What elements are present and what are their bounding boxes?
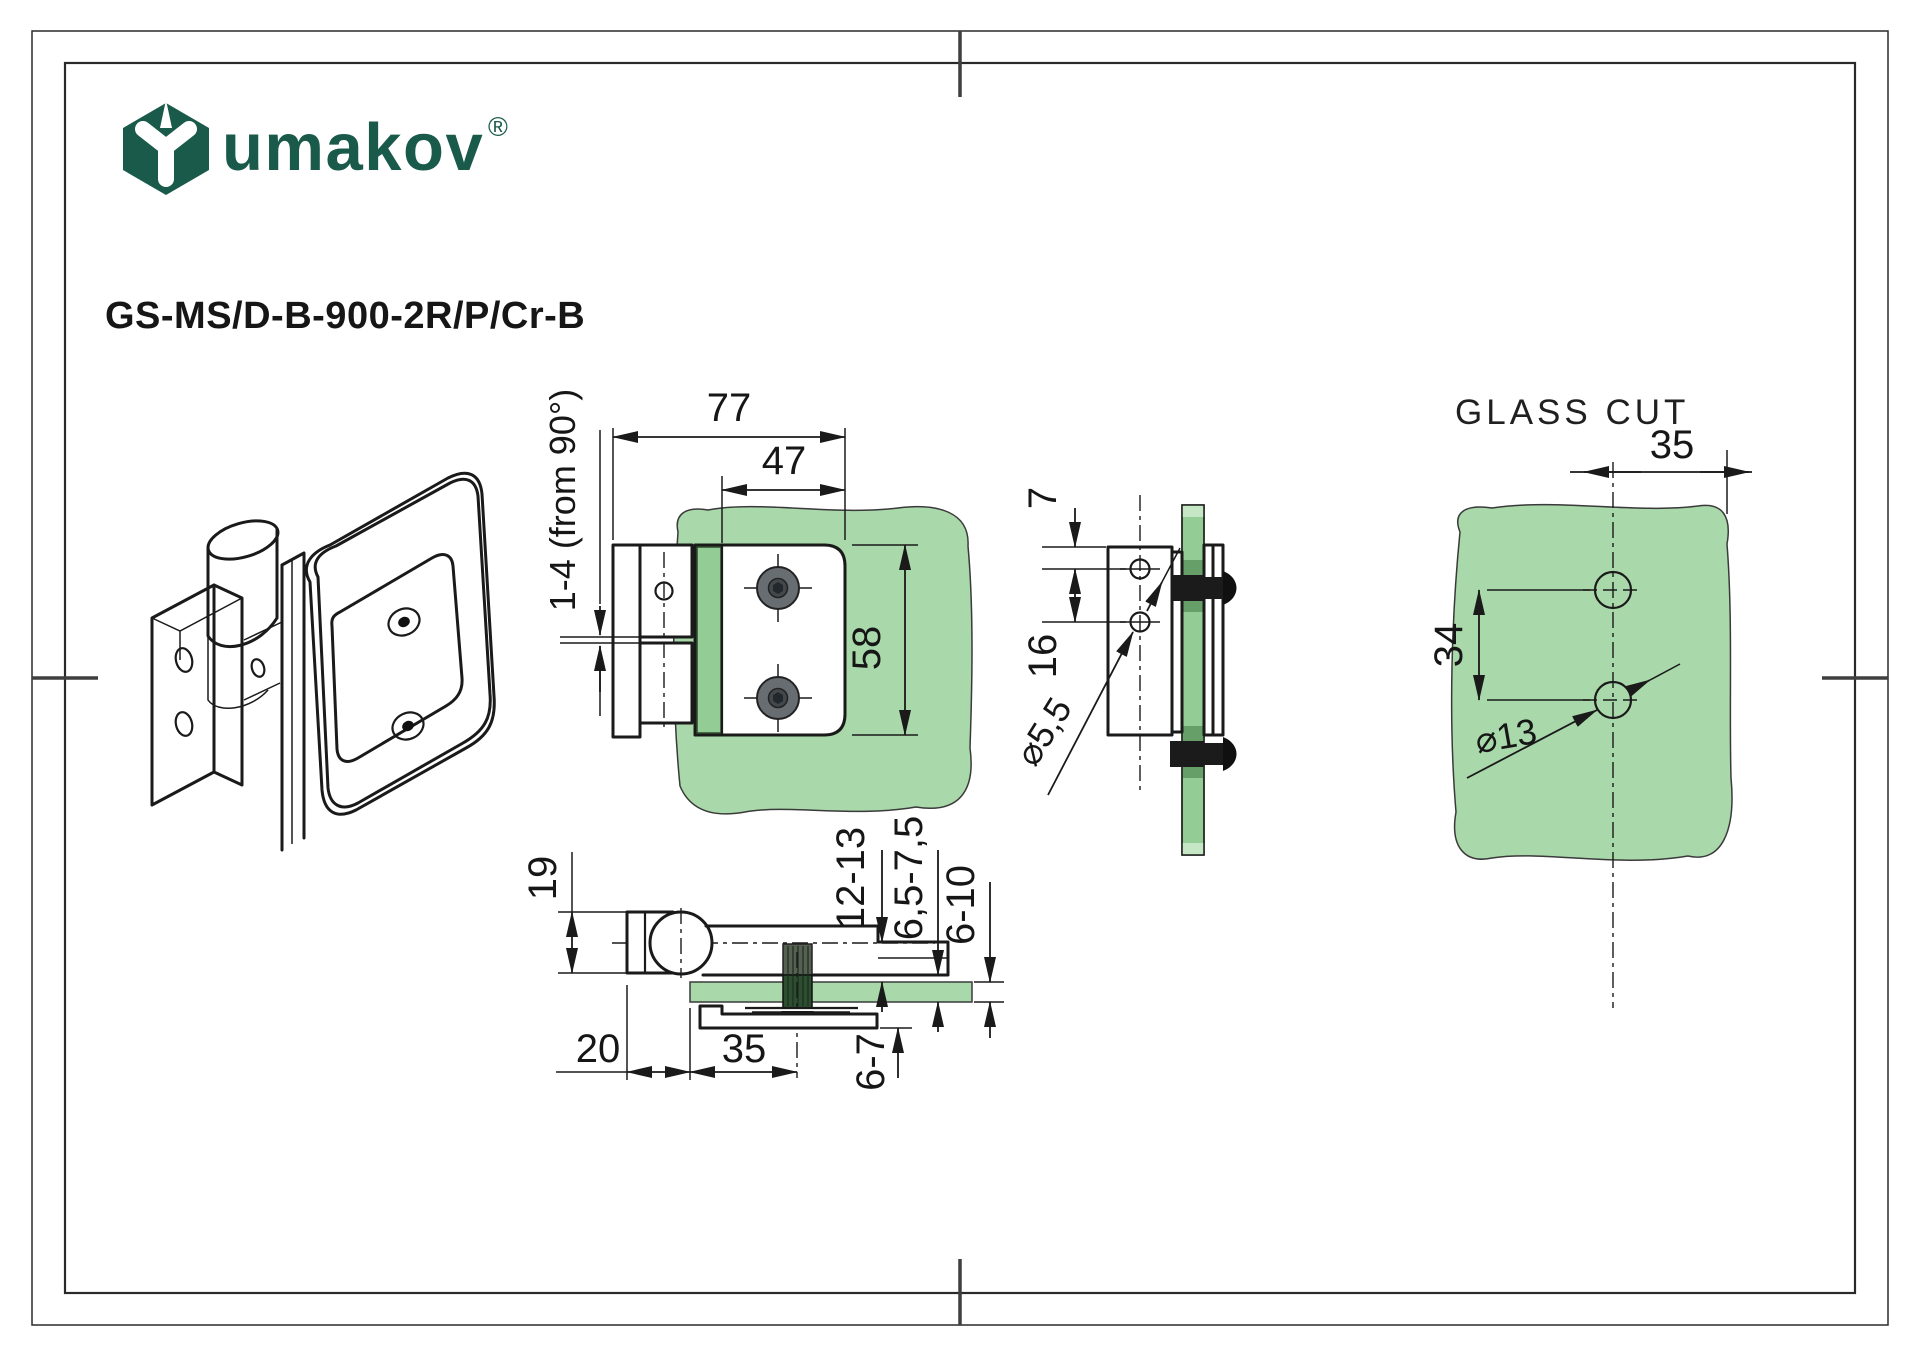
dim-screw-offset: 35 bbox=[690, 1027, 797, 1072]
iso-screw bbox=[388, 707, 428, 744]
umakov-hexagon-star-logo-icon bbox=[123, 100, 209, 195]
isometric-view bbox=[152, 473, 494, 850]
svg-text:⌀5,5: ⌀5,5 bbox=[1007, 690, 1080, 773]
dim-hinge-offset: 20 bbox=[556, 985, 690, 1080]
svg-text:77: 77 bbox=[707, 386, 752, 430]
svg-text:34: 34 bbox=[1427, 623, 1471, 668]
iso-glass-edge bbox=[282, 553, 304, 850]
bottom-clamp-plate bbox=[700, 1006, 877, 1028]
dim-bottom-plate: 6-7 bbox=[849, 1028, 912, 1091]
dim-adjustment: 1-4 (from 90°) bbox=[542, 389, 600, 716]
glass-bottom bbox=[690, 982, 972, 1002]
umakov-logo: umakov ® bbox=[123, 100, 508, 195]
svg-text:20: 20 bbox=[576, 1027, 621, 1071]
iso-screw bbox=[384, 603, 424, 640]
svg-text:16: 16 bbox=[1021, 634, 1065, 679]
svg-text:35: 35 bbox=[1650, 423, 1695, 467]
drawing-sheet: umakov ® GS-MS/D-B-900-2R/P/Cr-B bbox=[0, 0, 1920, 1357]
front-view: 77 47 58 1-4 (from 90°) bbox=[542, 386, 972, 814]
svg-text:7: 7 bbox=[1021, 487, 1065, 509]
svg-text:1-4 (from 90°): 1-4 (from 90°) bbox=[542, 389, 583, 611]
svg-text:58: 58 bbox=[845, 626, 889, 671]
brand-text: umakov bbox=[222, 110, 484, 185]
registered-mark: ® bbox=[488, 112, 508, 142]
drawing-canvas: umakov ® GS-MS/D-B-900-2R/P/Cr-B bbox=[0, 0, 1920, 1357]
glass-edge-strip bbox=[1182, 505, 1204, 855]
part-number: GS-MS/D-B-900-2R/P/Cr-B bbox=[105, 295, 585, 337]
side-screw bbox=[1170, 571, 1237, 605]
bottom-view: 19 20 35 12-13 6,5-7,5 bbox=[521, 816, 1004, 1091]
svg-text:6,5-7,5: 6,5-7,5 bbox=[887, 816, 931, 941]
svg-text:35: 35 bbox=[722, 1027, 767, 1071]
glass-cut-pane bbox=[1452, 505, 1732, 861]
dim-knuckle: 19 bbox=[521, 852, 636, 973]
svg-text:6-10: 6-10 bbox=[939, 865, 983, 945]
side-screw bbox=[1170, 737, 1237, 771]
iso-wall-bracket bbox=[152, 585, 242, 805]
svg-text:12-13: 12-13 bbox=[829, 827, 873, 929]
dim-hole-edge-offset: 35 bbox=[1570, 423, 1752, 514]
svg-text:47: 47 bbox=[762, 439, 807, 483]
svg-text:6-7: 6-7 bbox=[849, 1033, 893, 1091]
side-view: 7 16 ⌀5,5 bbox=[1007, 487, 1236, 855]
glass-cut-view: GLASS CUT 35 34 ⌀13 bbox=[1427, 393, 1752, 1008]
glass-slot bbox=[697, 547, 721, 733]
svg-text:19: 19 bbox=[521, 856, 565, 901]
